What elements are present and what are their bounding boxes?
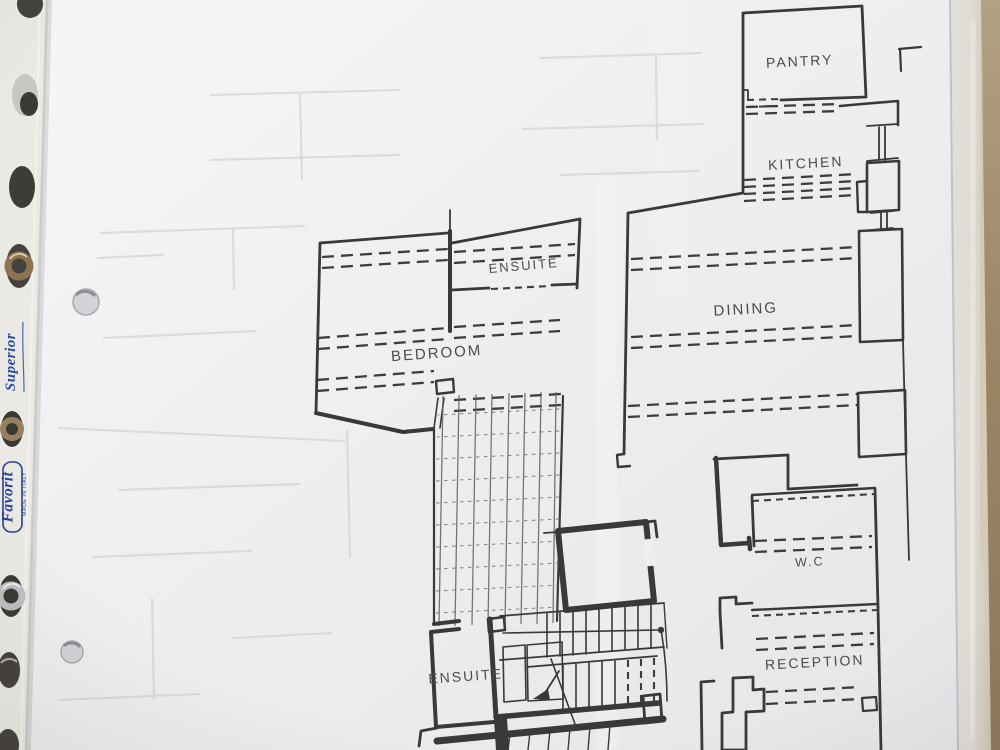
photo-vignette [0,0,1000,750]
photo-stage: PANTRY KITCHEN DINING ENSUITE BEDROOM W.… [0,0,1000,750]
floor-plan-photo-svg: PANTRY KITCHEN DINING ENSUITE BEDROOM W.… [0,0,1000,750]
